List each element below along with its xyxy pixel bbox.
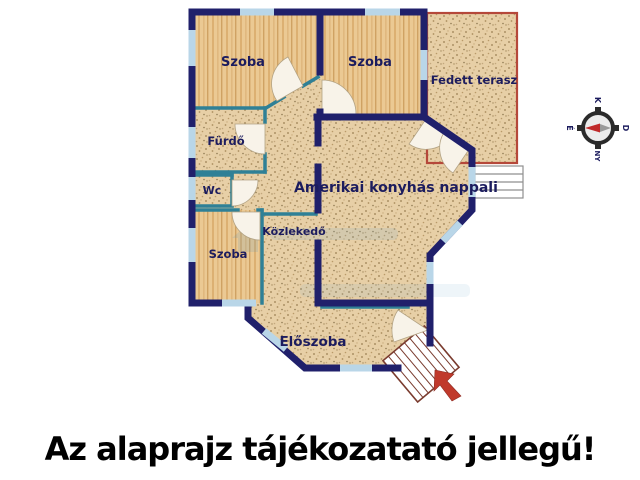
room-label-wc: Wc: [203, 184, 222, 197]
room-label-nappali: Amerikai konyhás nappali: [294, 180, 498, 196]
room-label-szoba3: Szoba: [209, 247, 248, 261]
floorplan-drawing: K D NY É Szoba Szoba Fedett terasz Fürdő…: [0, 0, 640, 430]
room-label-furdo: Fürdő: [207, 134, 244, 148]
room-label-szoba1: Szoba: [221, 55, 265, 70]
compass: K D NY É: [565, 97, 630, 162]
room-label-terasz: Fedett terasz: [431, 73, 518, 87]
room-label-szoba2: Szoba: [348, 55, 392, 70]
room-label-kozlekedo: Közlekedő: [262, 225, 326, 238]
room-label-eloszoba: Előszoba: [279, 334, 346, 350]
floorplan-page: K D NY É Szoba Szoba Fedett terasz Fürdő…: [0, 0, 640, 480]
compass-label-bottom: NY: [593, 151, 601, 163]
compass-label-left: É: [565, 125, 576, 130]
entrance-arrow: [434, 370, 461, 401]
compass-label-right: D: [621, 125, 630, 132]
compass-label-top: K: [593, 97, 602, 104]
disclaimer-caption: Az alaprajz tájékozatató jellegű!: [0, 430, 640, 468]
